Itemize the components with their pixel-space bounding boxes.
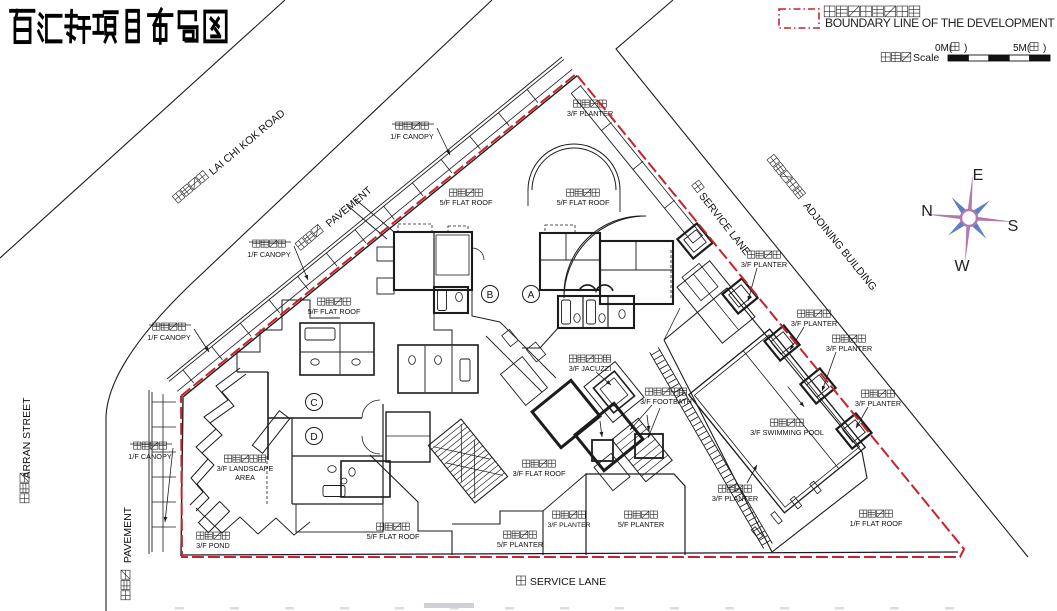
svg-text:3/F JACUZZI: 3/F JACUZZI xyxy=(569,364,612,373)
svg-text:): ) xyxy=(964,43,967,54)
svg-text:C: C xyxy=(310,398,317,409)
svg-text:5/F FLAT ROOF: 5/F FLAT ROOF xyxy=(440,198,493,207)
svg-text:Scale: Scale xyxy=(913,52,939,64)
svg-text:): ) xyxy=(1043,43,1046,54)
svg-text:3/F SWIMMING POOL: 3/F SWIMMING POOL xyxy=(750,428,824,437)
svg-text:B: B xyxy=(487,290,494,301)
svg-text:5/F FLAT ROOF: 5/F FLAT ROOF xyxy=(367,532,420,541)
svg-text:1/F CANOPY: 1/F CANOPY xyxy=(247,250,291,259)
svg-text:AREA: AREA xyxy=(235,473,255,482)
svg-text:A: A xyxy=(528,290,535,301)
svg-text:PAVEMENT: PAVEMENT xyxy=(122,506,134,563)
svg-text:3/F PLANTER: 3/F PLANTER xyxy=(547,522,590,529)
svg-text:3/F FOOTBATH: 3/F FOOTBATH xyxy=(640,397,692,406)
svg-text:1/F FLAT ROOF: 1/F FLAT ROOF xyxy=(850,519,903,528)
svg-text:3/F PLANTER: 3/F PLANTER xyxy=(741,260,787,269)
svg-text:3/F FLAT ROOF: 3/F FLAT ROOF xyxy=(513,469,566,478)
svg-text:E: E xyxy=(973,167,984,184)
svg-text:1/F CANOPY: 1/F CANOPY xyxy=(128,452,172,461)
svg-text:3/F PLANTER: 3/F PLANTER xyxy=(855,399,901,408)
svg-text:5/F FLAT ROOF: 5/F FLAT ROOF xyxy=(308,307,361,316)
svg-text:5/F PLANTER: 5/F PLANTER xyxy=(497,540,543,549)
svg-text:3/F PLANTER: 3/F PLANTER xyxy=(567,109,613,118)
svg-text:3/F PLANTER: 3/F PLANTER xyxy=(791,319,837,328)
svg-text:BOUNDARY LINE OF THE DEVELOPME: BOUNDARY LINE OF THE DEVELOPMENT xyxy=(825,16,1055,30)
svg-text:5M(: 5M( xyxy=(1013,43,1031,54)
svg-text:1/F CANOPY: 1/F CANOPY xyxy=(390,132,434,141)
svg-text:1/F CANOPY: 1/F CANOPY xyxy=(147,333,191,342)
svg-text:5/F PLANTER: 5/F PLANTER xyxy=(618,520,664,529)
svg-text:5/F FLAT ROOF: 5/F FLAT ROOF xyxy=(557,198,610,207)
svg-text:3/F LANDSCAPE: 3/F LANDSCAPE xyxy=(217,464,274,473)
svg-text:3/F POND: 3/F POND xyxy=(196,541,230,550)
svg-text:D: D xyxy=(310,432,317,443)
svg-text:S: S xyxy=(1008,218,1019,235)
svg-text:W: W xyxy=(954,258,970,275)
svg-text:N: N xyxy=(921,203,933,220)
svg-text:3/F PLANTER: 3/F PLANTER xyxy=(826,344,872,353)
svg-text:SERVICE LANE: SERVICE LANE xyxy=(530,576,606,588)
svg-text:ARRAN STREET: ARRAN STREET xyxy=(21,397,33,479)
svg-text:3/F PLANTER: 3/F PLANTER xyxy=(712,494,758,503)
